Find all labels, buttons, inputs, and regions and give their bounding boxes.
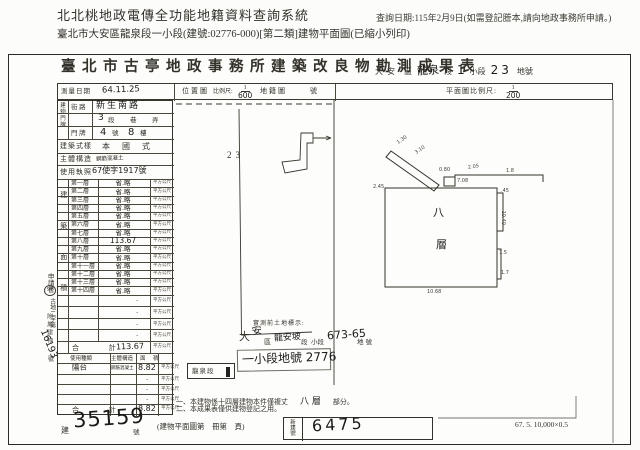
plan-dim: 3.10 — [414, 145, 426, 156]
form-print-code: 67. 5. 10,000×0.5 — [515, 421, 568, 429]
district-label: 大安 — [375, 68, 399, 77]
blank-dot: · — [146, 387, 148, 395]
plan-scale-label: 平面圖比例尺: — [446, 88, 497, 96]
misc-lines — [438, 100, 613, 443]
plan-dim: .45 — [501, 189, 509, 195]
sqm-unit: 平方公尺 — [153, 205, 162, 210]
plan-dim: 7.08 — [457, 179, 468, 185]
plan-dim: 1.7 — [501, 271, 509, 277]
sqm-unit: 平方公尺 — [153, 189, 162, 194]
section-suffix: 段 — [444, 68, 452, 77]
door-floor-unit: 樓 — [140, 130, 147, 137]
system-title: 北北桃地政電傳全功能地籍資料查詢系統 — [57, 9, 309, 23]
sqm-unit: 平方公尺 — [153, 263, 162, 268]
floor-area: 省.略 — [98, 180, 148, 187]
plan-dim: 1.8 — [506, 169, 514, 175]
license-label: 使用執照 — [60, 169, 92, 177]
floor-label: 第九層 — [71, 247, 89, 254]
floor-label: 第八層 — [71, 239, 89, 246]
sqm-unit: 平方公尺 — [153, 322, 162, 327]
lane-unit: 巷 — [130, 117, 137, 124]
map-parcel-number: 23 — [227, 151, 244, 161]
cadastral-map-label: 地籍圖 — [260, 88, 287, 96]
note-1-handwritten: 八 層 — [300, 397, 321, 407]
door-no-unit: 號 — [112, 130, 119, 137]
sqm-unit: 平方公尺 — [153, 344, 162, 349]
floor-area: 省.略 — [98, 288, 148, 295]
sqm-unit: 平方公尺 — [161, 377, 170, 382]
door-floor-value: 8 — [128, 127, 134, 138]
plan-dim: 0.80 — [439, 168, 450, 174]
sqm-unit: 平方公尺 — [153, 279, 162, 284]
plan-dim: 2.45 — [373, 185, 384, 191]
floor-label: 第十層 — [71, 255, 89, 262]
sqm-unit: 平方公尺 — [153, 255, 162, 260]
old-section-suffix: 段 — [301, 339, 308, 346]
building-style-label: 建築式樣 — [60, 143, 92, 151]
floor-label: 第五層 — [71, 214, 89, 221]
door-no-value: 4 — [100, 127, 106, 138]
sqm-unit: 平方公尺 — [153, 238, 162, 243]
plan-floor-char-2: 層 — [436, 239, 447, 251]
annex-use-value: 陽台 — [72, 363, 88, 372]
plan-dim: 10.40 — [499, 211, 505, 225]
plan-scale-denominator: 200 — [506, 92, 520, 100]
query-date-label: 查詢日期:115年2月9日(如需登記謄本,請向地政事務所申請。) — [376, 14, 611, 24]
sqm-unit: 平方公尺 — [153, 271, 162, 276]
old-district-char: 大 — [239, 331, 250, 343]
floor-label: 第十三層 — [71, 280, 95, 287]
alley-unit: 弄 — [152, 117, 159, 124]
sqm-unit: 平方公尺 — [153, 197, 162, 202]
annex-use-header: 使用種類 — [70, 356, 92, 362]
floor-label: 第七層 — [71, 231, 89, 238]
subsection-suffix: 小段 — [470, 68, 486, 77]
annex-structure-header: 主體構造 — [111, 356, 133, 362]
sqm-unit: 平方公尺 — [161, 387, 170, 392]
seal-mark — [226, 367, 230, 377]
parcel-suffix: 地號 — [517, 68, 533, 77]
survey-result-form: 臺北市古亭地政事務所建築改良物勘測成果表 大安 區 龍泉 段 1 小段 23 地… — [8, 54, 631, 445]
floors-total-value: 113.67 — [116, 343, 144, 353]
annex-area-header: 面 積 — [140, 356, 161, 362]
blank-dot: · — [136, 310, 138, 318]
door-plate-vertical-label: 建物門牌 — [59, 102, 65, 140]
sqm-unit: 平方公尺 — [161, 406, 170, 411]
sqm-unit: 平方公尺 — [153, 288, 162, 293]
section-no-value: 3 — [98, 114, 104, 124]
annex-structure-value: 鋼筋混凝土 — [111, 367, 134, 372]
position-map-label: 位置圖 — [182, 88, 209, 96]
plan-dim: 10.68 — [427, 290, 441, 296]
blank-dot: · — [136, 298, 138, 306]
floor-label: 第一層 — [71, 181, 89, 188]
application-year-circle: 97 — [44, 285, 56, 296]
section-handwritten: 龍泉 — [417, 64, 440, 78]
floor-label: 第二層 — [71, 189, 89, 196]
section-stamp-text: 龍泉段 — [192, 368, 215, 375]
license-value: 67使字1917號 — [92, 167, 147, 176]
sqm-unit: 平方公尺 — [153, 246, 162, 251]
page: { "header": { "system_title": "北北桃地政電傳全功… — [0, 0, 640, 450]
location-line: 大安 區 龍泉 段 1 小段 23 地號 — [375, 64, 533, 77]
sqm-unit: 平方公尺 — [153, 213, 162, 218]
floor-area: 省.略 — [98, 213, 148, 220]
floor-label: 第十四層 — [71, 288, 95, 295]
sqm-unit: 平方公尺 — [153, 230, 162, 235]
note-2: 二、本成果表僅供建物登記之用。 — [176, 406, 281, 414]
structure-label: 主體構造 — [60, 156, 92, 164]
annex-area-value: 8.82 — [138, 364, 156, 373]
floor-label: 第四層 — [71, 206, 89, 213]
sqm-unit: 平方公尺 — [153, 298, 162, 303]
old-section-handwritten: 龍安坡 — [274, 333, 301, 344]
plan-dim: 1.30 — [396, 135, 408, 146]
floor-area-8f: 113.67 — [98, 237, 148, 245]
building-no-suffix: 號 — [133, 429, 140, 436]
scale-denominator: 600 — [238, 92, 252, 100]
parcel-handwritten: 23 — [491, 64, 512, 77]
section-unit: 段 — [108, 117, 115, 124]
blank-dot: · — [136, 322, 138, 330]
position-map-scale: 1 600 — [238, 85, 252, 100]
sqm-unit: 平方公尺 — [161, 365, 170, 370]
sqm-unit: 平方公尺 — [161, 397, 170, 402]
new-building-no-label: 新建號 — [289, 419, 295, 440]
survey-date-value: 64.11.25 — [102, 85, 140, 96]
street-value: 新生南路 — [96, 102, 140, 112]
sqm-unit: 平方公尺 — [153, 222, 162, 227]
blank-dot: · — [136, 333, 138, 341]
sqm-unit: 平方公尺 — [153, 310, 162, 315]
subsection-handwritten: 1 — [457, 64, 465, 77]
floor-label: 第六層 — [71, 222, 89, 229]
floor-area: 省.略 — [98, 246, 148, 253]
plan-page-note: (建物平面圖第 冊第 頁) — [157, 423, 245, 431]
street-label: 街 路 — [71, 104, 86, 111]
old-subsection-label: 小段 — [311, 339, 324, 346]
document-subtitle: 臺北市大安區龍泉段一小段(建號:02776-000)[第二類]建物平面圖(已縮小… — [57, 29, 410, 41]
old-parcel-suffix: 地號 — [357, 339, 374, 346]
building-data-table: 建物門牌 街 路 新生南路 3 段 巷 弄 門 牌 4 號 8 樓 建築式樣 本… — [57, 100, 173, 415]
plan-dim: 2.05 — [468, 164, 480, 171]
floor-label: 第十二層 — [71, 272, 95, 279]
district-suffix: 區 — [404, 68, 412, 77]
old-district-handwritten: 安 — [251, 325, 262, 337]
cadastral-no-label: 號 — [310, 88, 317, 96]
floor-plan-drawing — [385, 151, 543, 287]
note-1-suffix: 部分。 — [333, 398, 354, 406]
blank-dot: · — [146, 377, 148, 385]
building-no-label: 建 — [61, 427, 69, 436]
survey-date-label: 測量日期 — [61, 88, 91, 95]
annex-vertical-label: 附屬建物 — [45, 313, 52, 365]
new-building-no-box: 新建號 6475 — [283, 417, 433, 440]
building-style-value: 本 國 式 — [102, 143, 155, 152]
door-no-label: 門 牌 — [71, 130, 86, 137]
new-building-no-handwritten: 6475 — [312, 415, 366, 435]
sqm-unit: 平方公尺 — [153, 333, 162, 338]
scale-ratio-label: 比例尺: — [213, 89, 233, 96]
floor-label: 第十一層 — [71, 264, 95, 271]
building-area-vertical-label: 建築面積 — [59, 191, 67, 331]
plan-scale: 1 200 — [506, 85, 520, 100]
old-district-suffix: 區 — [264, 339, 271, 347]
section-stamp-box: 龍泉段 — [187, 363, 235, 379]
floor-area: 省.略 — [98, 279, 148, 286]
scale-header-row: 測量日期 64.11.25 位置圖 比例尺: 1 600 地籍圖 號 平面圖比例… — [57, 83, 613, 100]
plan-dim: 1.5 — [499, 251, 507, 257]
sqm-unit: 平方公尺 — [153, 180, 162, 185]
plan-floor-char-1: 八 — [433, 207, 444, 219]
floor-label: 第三層 — [71, 198, 89, 205]
